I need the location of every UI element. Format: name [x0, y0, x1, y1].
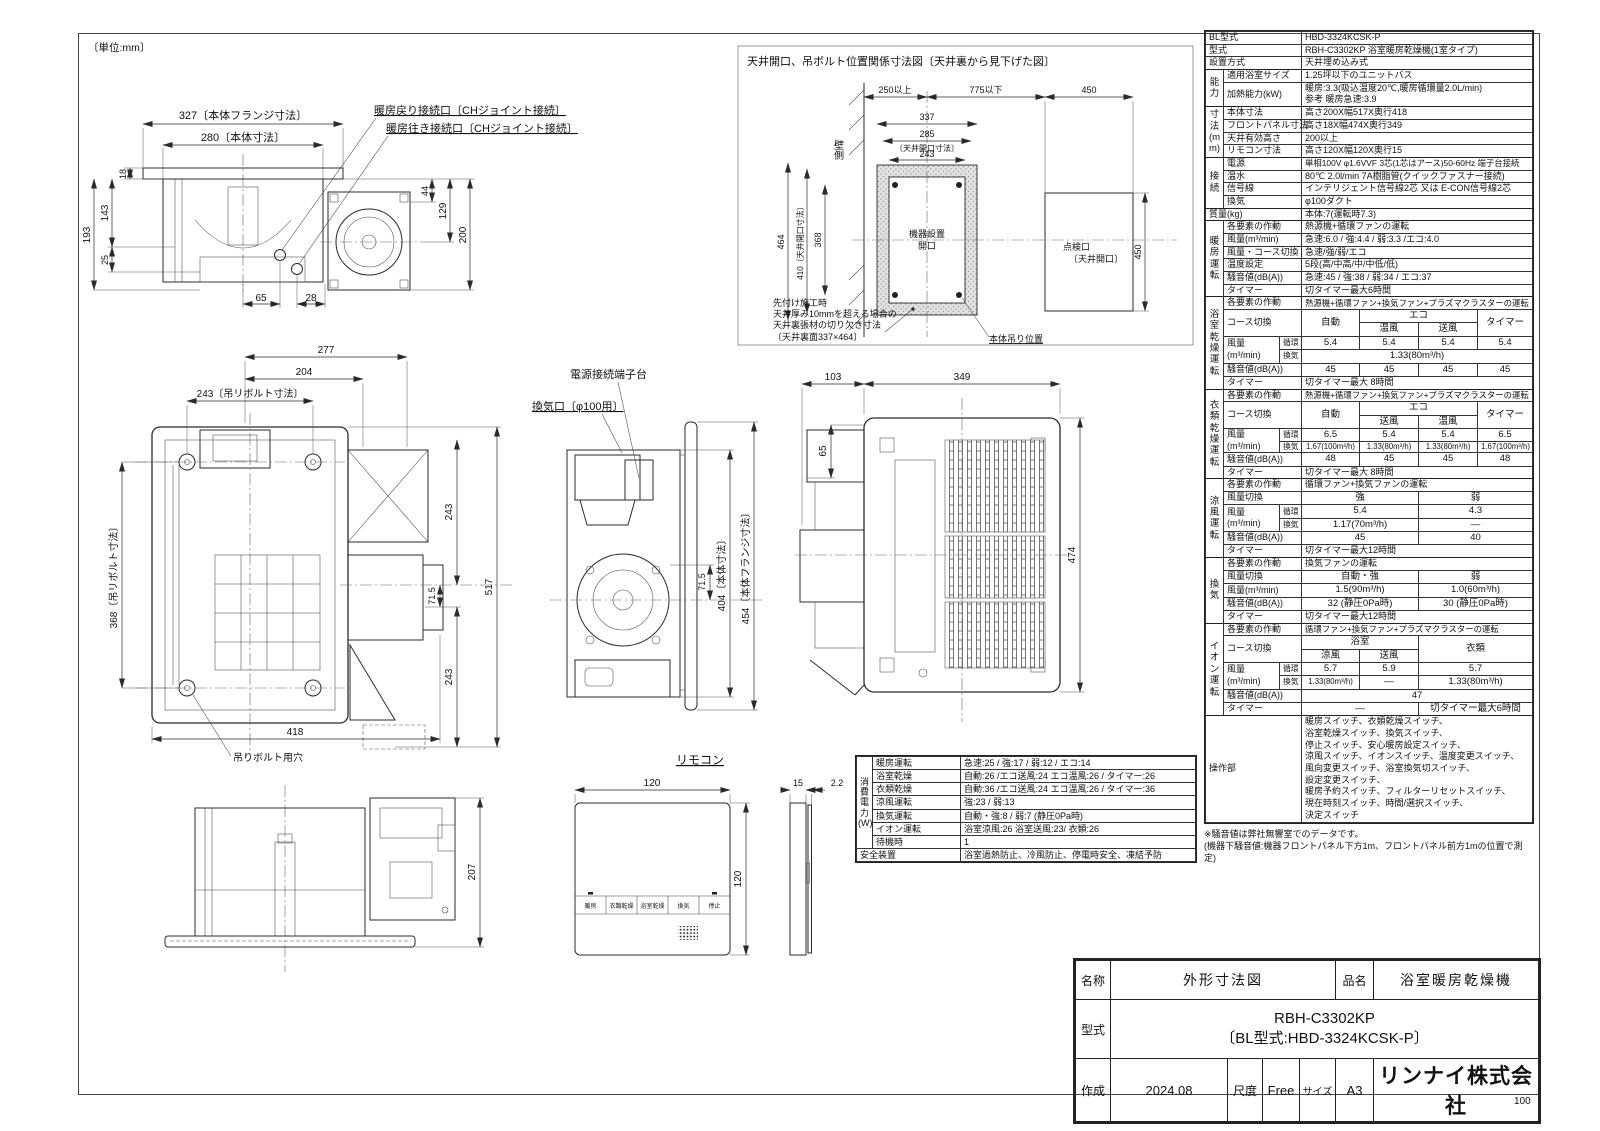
spec-label: タイマー	[1224, 466, 1302, 479]
install-opening-label2: 開口	[918, 241, 936, 251]
spec-label: 各要素の作動	[1224, 297, 1302, 310]
spec-value: 40	[1419, 532, 1533, 545]
spec-value: RBH-C3302KP 浴室暖房乾燥機(1室タイプ)	[1302, 44, 1533, 57]
remote-button-vent: 換気	[677, 902, 689, 910]
spec-value: 5.9	[1360, 662, 1419, 675]
spec-col-header: 弱	[1419, 570, 1533, 583]
dim-label: 71.5	[427, 587, 437, 605]
inspection-port-label2: 〔天井開口〕	[1069, 253, 1123, 264]
spec-value: 200以上	[1302, 132, 1533, 145]
power-value: 1	[961, 835, 1196, 848]
side-view-2-dimensions: 207	[415, 798, 484, 947]
noise-note: ※騒音値は弊社無響室でのデータです。 (機器下騒音値:機器フロントパネル下方1m…	[1204, 828, 1534, 864]
spec-value: 熱源機+循環ファンの運転	[1302, 221, 1533, 234]
spec-value: 1.67(100m³/h)	[1302, 442, 1360, 453]
spec-value: 5.4	[1360, 428, 1419, 441]
remote-button-stop: 停止	[708, 902, 720, 910]
spec-value: 45	[1302, 532, 1419, 545]
panel-view: 103 349 65 474	[795, 370, 1220, 732]
safety-value: 浴室過熱防止、冷風防止、停電時安全、凍結予防	[961, 848, 1196, 861]
spec-value: 熱源機+循環ファン+換気ファン+プラズマクラスターの運転	[1302, 297, 1533, 310]
spec-value: 45	[1302, 363, 1360, 376]
spec-value: 45	[1360, 453, 1419, 466]
spec-value: 高さ200X幅517X奥行418	[1302, 107, 1533, 120]
dim-label: 65	[818, 445, 829, 457]
date-label: 作成	[1076, 1059, 1111, 1122]
spec-col-header: 強	[1302, 492, 1419, 505]
dim-label: 349	[954, 372, 971, 383]
creation-date: 2024.08	[1111, 1059, 1228, 1122]
panel-view-geometry	[795, 398, 1067, 722]
drawing-sheet: 〔単位:mm〕 100 327〔本	[0, 0, 1600, 1131]
spec-sublabel: 循環	[1280, 662, 1302, 675]
power-group: 消費電力(W)	[857, 757, 873, 849]
spec-value: インテリジェント信号線2芯 又は E-CON信号線2芯	[1302, 183, 1533, 196]
dim-label: 18	[118, 169, 128, 179]
spec-value: 1.33(80m³/h)	[1419, 676, 1533, 689]
dim-label: 120	[733, 870, 744, 887]
spec-col-header: 自動・強	[1302, 570, 1419, 583]
spec-col-header: 浴室	[1302, 636, 1419, 649]
spec-value: 切タイマー最大 8時間	[1302, 376, 1533, 389]
remote-button-bath-dry: 浴室乾燥	[640, 902, 664, 910]
spec-label: 風量(m³/min)	[1224, 428, 1280, 452]
spec-label: コース切換	[1224, 310, 1302, 337]
spec-value: 5.7	[1419, 662, 1533, 675]
spec-label: 温度設定	[1224, 259, 1302, 272]
bolt-hole-label: 吊りボルト用穴	[233, 751, 303, 764]
power-table: 消費電力(W) 暖房運転急速:25 / 強:17 / 弱:12 / エコ:14 …	[855, 755, 1197, 863]
dim-label: 285	[919, 129, 934, 139]
spec-label: 風量(m³/min)	[1224, 505, 1280, 532]
spec-value: —	[1419, 518, 1533, 531]
spec-col-header: 送風	[1360, 415, 1419, 428]
dim-label: 368〔吊リボルト寸法〕	[107, 522, 120, 629]
spec-label: 各要素の作動	[1224, 558, 1302, 571]
size-label: サイズ	[1300, 1059, 1336, 1122]
dim-label: 193	[82, 226, 93, 243]
spec-value: 高さ18X幅474X奥行349	[1302, 119, 1533, 132]
spec-label: 騒音値(dB(A))	[1224, 272, 1302, 285]
remote-geometry	[575, 803, 812, 955]
spec-value: 5.4	[1302, 336, 1360, 349]
spec-label: 設置方式	[1206, 57, 1302, 70]
remote-dimensions: 120 120 15 2.2	[575, 778, 843, 955]
side-view-2-geometry	[165, 785, 455, 972]
dim-label: 204	[296, 367, 313, 378]
hanging-position-label: 本体吊り位置	[989, 333, 1043, 344]
spec-value: 4.3	[1419, 505, 1533, 518]
spec-value: 高さ120X幅120X奥行15	[1302, 145, 1533, 158]
dim-label: 44	[420, 186, 430, 196]
spec-label: 質量(kg)	[1206, 208, 1302, 221]
spec-sublabel: 換気	[1280, 442, 1302, 453]
spec-label: タイマー	[1224, 610, 1302, 623]
dim-label: 129	[438, 202, 449, 219]
spec-col-header: 衣類	[1419, 636, 1533, 663]
ceiling-diagram: 天井開口、吊ボルト位置関係寸法図〔天井裏から見下げた図〕 壁側 機器設置 開口 …	[737, 45, 1195, 347]
spec-label: フロントパネル寸法	[1224, 119, 1302, 132]
spec-sublabel: 換気	[1280, 676, 1302, 689]
pre-install-note: 〔天井裏面337×464〕	[773, 331, 862, 342]
spec-value: —	[1360, 676, 1419, 689]
spec-value: 45	[1478, 363, 1533, 376]
front-view-geometry	[143, 154, 425, 292]
spec-value: 循環ファン+換気ファンの運転	[1302, 479, 1533, 492]
power-value: 浴室涼風:26 浴室送風:23/ 衣類:26	[961, 822, 1196, 835]
spec-label: BL型式	[1206, 32, 1302, 45]
power-label: 衣類乾燥	[873, 783, 961, 796]
spec-value: 1.33(80m³/h)	[1419, 442, 1478, 453]
spec-value: 急速:45 / 強:38 / 弱:34 / エコ:37	[1302, 272, 1533, 285]
spec-value: 6.5	[1478, 428, 1533, 441]
dim-label: 280〔本体寸法〕	[201, 130, 285, 144]
drawing-name: 外形寸法図	[1111, 961, 1336, 1000]
spec-value: 5.4	[1419, 336, 1478, 349]
spec-sublabel: 換気	[1280, 350, 1302, 363]
spec-group: 衣類乾燥運転	[1206, 389, 1224, 479]
dim-label: 404〔本体寸法〕	[715, 535, 728, 612]
spec-value-line: 暖房:3.3(吸込温度20℃,暖房循環量2.0L/min)	[1305, 83, 1529, 95]
spec-value: 1.33(80m³/h)	[1302, 350, 1533, 363]
spec-value: 80℃ 2.0l/min 7A樹脂管(クイックファスナー接続)	[1302, 170, 1533, 183]
spec-value: 1.33(80m³/h)	[1360, 442, 1419, 453]
spec-group: 暖房運転	[1206, 221, 1224, 297]
spec-value: 48	[1302, 453, 1360, 466]
spec-connection-table: 接続 電源単相100V φ1.6VVF 3芯(1芯はアース)50-60Hz 端子…	[1205, 157, 1533, 209]
spec-label: 各要素の作動	[1224, 479, 1302, 492]
spec-label: 換気	[1224, 195, 1302, 208]
dim-label: 143	[100, 204, 111, 221]
side-view-callouts: 電源接続端子台 換気口〔φ100用〕	[532, 367, 647, 478]
power-label: 換気運転	[873, 809, 961, 822]
dim-label: 277	[318, 345, 335, 356]
dim-label: 474	[1067, 546, 1078, 563]
spec-value: 暖房:3.3(吸込温度20℃,暖房循環量2.0L/min)参考 暖房急速:3.9	[1302, 82, 1533, 106]
dim-label: 120	[644, 778, 661, 789]
product-name: 浴室暖房乾燥機	[1374, 961, 1539, 1000]
spec-value: 切タイマー最大12時間	[1302, 545, 1533, 558]
power-label: 待機時	[873, 835, 961, 848]
company-name: リンナイ株式会社	[1374, 1059, 1539, 1122]
spec-mass-table: 質量(kg)本体:7(運転時7.3)	[1205, 208, 1533, 222]
spec-sublabel: 循環	[1280, 336, 1302, 349]
spec-value: 切タイマー最大6時間	[1302, 284, 1533, 297]
spec-label: 本体寸法	[1224, 107, 1302, 120]
dim-label: 450	[1081, 85, 1096, 95]
spec-label: 風量・コース切換	[1224, 246, 1302, 259]
spec-label: タイマー	[1224, 376, 1302, 389]
spec-label: タイマー	[1224, 545, 1302, 558]
ch-return-label: 暖房戻り接続口〔CHジョイント接続〕	[374, 103, 566, 117]
spec-value: 換気ファンの運転	[1302, 558, 1533, 571]
spec-value: 6.5	[1302, 428, 1360, 441]
spec-label: コース切換	[1224, 402, 1302, 429]
safety-label: 安全装置	[857, 848, 961, 861]
spec-label: 適用浴室サイズ	[1224, 70, 1302, 83]
spec-label: コース切換	[1224, 636, 1302, 663]
spec-label: 風量(m³/min)	[1224, 584, 1302, 597]
front-view-callouts: 暖房戻り接続口〔CHジョイント接続〕 暖房往き接続口〔CHジョイント接続〕	[282, 103, 578, 264]
dim-label: 327〔本体フランジ寸法〕	[179, 108, 307, 122]
spec-value: 暖房スイッチ、衣類乾燥スイッチ、浴室乾燥スイッチ、換気スイッチ、 停止スイッチ、…	[1302, 716, 1533, 822]
spec-col-header: エコ	[1360, 402, 1478, 415]
dim-label: 337	[919, 112, 934, 122]
power-value: 自動:26 /エコ送風:24 エコ温風:26 / タイマー:26	[961, 770, 1196, 783]
dim-label: 2.2	[831, 778, 844, 788]
model-label: 型式	[1076, 1000, 1111, 1059]
dim-label: 464	[776, 234, 786, 249]
spec-label: 風量切換	[1224, 570, 1302, 583]
vent-port-label: 換気口〔φ100用〕	[532, 399, 624, 413]
spec-col-header: 温風	[1360, 323, 1419, 336]
spec-value: 45	[1360, 363, 1419, 376]
spec-col-header: 送風	[1419, 323, 1478, 336]
spec-value: 47	[1302, 689, 1533, 702]
spec-label: 天井有効高さ	[1224, 132, 1302, 145]
remote-view: リモコン 暖房 衣類乾燥 浴室乾燥 換気 停止 120 120	[550, 748, 860, 1003]
spec-label: 騒音値(dB(A))	[1224, 532, 1302, 545]
pre-install-note: 天井裏張材の切り欠き寸法	[773, 319, 881, 330]
power-label: 浴室乾燥	[873, 770, 961, 783]
ch-supply-label: 暖房往き接続口〔CHジョイント接続〕	[386, 121, 578, 135]
spec-label: 信号線	[1224, 183, 1302, 196]
spec-value: 熱源機+循環ファン+換気ファン+プラズマクラスターの運転	[1302, 389, 1533, 402]
dim-label: 243	[444, 668, 455, 685]
spec-label: 各要素の作動	[1224, 221, 1302, 234]
spec-sublabel: 換気	[1280, 518, 1302, 531]
dim-label: 243	[919, 149, 934, 159]
spec-value: 5.4	[1360, 336, 1419, 349]
spec-col-header: 自動	[1302, 402, 1360, 429]
pre-install-note: 先付け施工時	[773, 297, 827, 308]
power-value: 強:23 / 弱:13	[961, 796, 1196, 809]
dim-label: 410〔天井開口寸法〕	[795, 202, 805, 279]
power-value: 自動:36 /エコ送風:24 エコ温風:26 / タイマー:36	[961, 783, 1196, 796]
spec-value: —	[1302, 702, 1419, 715]
spec-col-header: 温風	[1419, 415, 1478, 428]
dim-label: 25	[100, 255, 110, 265]
spec-group: イオン運転	[1206, 623, 1224, 716]
spec-value: 単相100V φ1.6VVF 3芯(1芯はアース)50-60Hz 端子台接続	[1302, 157, 1533, 170]
dim-label: 207	[467, 863, 478, 880]
spec-value: 1.33(80m³/h)	[1302, 676, 1360, 689]
ceiling-diagram-title: 天井開口、吊ボルト位置関係寸法図〔天井裏から見下げた図〕	[747, 54, 1055, 68]
spec-value: 1.25坪以下のユニットバス	[1302, 70, 1533, 83]
spec-value: φ100ダクト	[1302, 195, 1533, 208]
spec-value-line: 参考 暖房急速:3.9	[1305, 94, 1529, 106]
install-opening-label: 機器設置	[909, 228, 945, 239]
spec-label: 操作部	[1206, 716, 1302, 822]
dim-label: 368	[813, 232, 823, 247]
spec-value: 48	[1478, 453, 1533, 466]
spec-col-header: タイマー	[1478, 402, 1533, 429]
spec-value: 1.17(70m³/h)	[1302, 518, 1419, 531]
spec-col-header: 自動	[1302, 310, 1360, 337]
spec-label: 加熱能力(kW)	[1224, 82, 1302, 106]
side-view-dimensions: 71.5 404〔本体寸法〕 454〔本体フランジ寸法〕	[670, 422, 758, 710]
spec-controls-table: 操作部 暖房スイッチ、衣類乾燥スイッチ、浴室乾燥スイッチ、換気スイッチ、 停止ス…	[1205, 715, 1533, 822]
spec-group: 涼風運転	[1206, 479, 1224, 558]
title-block: 名称 外形寸法図 品名 浴室暖房乾燥機 型式 RBH-C3302KP 〔BL型式…	[1073, 958, 1541, 1124]
spec-value: 急速/強/弱/エコ	[1302, 246, 1533, 259]
dim-label: 15	[793, 778, 803, 788]
spec-label: タイマー	[1224, 284, 1302, 297]
spec-group: 換気	[1206, 558, 1224, 623]
spec-label: 騒音値(dB(A))	[1224, 689, 1302, 702]
item-label: 品名	[1336, 961, 1374, 1000]
speaker-grille	[678, 926, 698, 940]
spec-label: 温水	[1224, 170, 1302, 183]
spec-label: 電源	[1224, 157, 1302, 170]
wall-side-label: 壁側	[832, 139, 844, 160]
front-view-dimensions: 327〔本体フランジ寸法〕 280〔本体寸法〕 18 193 143 25 44…	[82, 108, 475, 308]
spec-group: 能力	[1206, 70, 1224, 107]
power-label: 暖房運転	[873, 757, 961, 770]
dim-label: 200	[458, 226, 469, 243]
spec-value: 5.4	[1302, 505, 1419, 518]
spec-value: 30 (静圧0Pa時)	[1419, 597, 1533, 610]
spec-value: 32 (静圧0Pa時)	[1302, 597, 1419, 610]
power-label: イオン運転	[873, 822, 961, 835]
dim-label: 28	[305, 293, 317, 304]
spec-value: 切タイマー最大12時間	[1302, 610, 1533, 623]
spec-ion-table: イオン運転 各要素の作動 循環ファン+換気ファン+プラズマクラスターの運転 コー…	[1205, 623, 1533, 717]
dim-label: 250以上	[878, 85, 911, 95]
spec-group: 浴室乾燥運転	[1206, 297, 1224, 389]
plan-view-geometry	[135, 413, 515, 755]
spec-value: 急速:6.0 / 強:4.4 / 弱:3.3 /エコ:4.0	[1302, 234, 1533, 247]
side-view-2: 207	[140, 770, 500, 982]
spec-value: 本体:7(運転時7.3)	[1302, 208, 1533, 221]
spec-value: HBD-3324KCSK-P	[1302, 32, 1533, 45]
unit-note: 〔単位:mm〕	[88, 40, 150, 55]
dim-label: 418	[287, 727, 304, 738]
pre-install-note: 天井厚み10mmを超える場合の	[773, 308, 897, 319]
spec-col-header: 涼風	[1302, 649, 1360, 662]
spec-bath-dry-table: 浴室乾燥運転 各要素の作動 熱源機+循環ファン+換気ファン+プラズマクラスターの…	[1205, 296, 1533, 389]
spec-dimension-table: 寸法(mm) 本体寸法高さ200X幅517X奥行418 フロントパネル寸法高さ1…	[1205, 106, 1533, 158]
spec-label: 型式	[1206, 44, 1302, 57]
spec-col-header: エコ	[1360, 310, 1478, 323]
spec-clothes-dry-table: 衣類乾燥運転 各要素の作動 熱源機+循環ファン+換気ファン+プラズマクラスターの…	[1205, 389, 1533, 480]
spec-capacity-table: 能力 適用浴室サイズ 1.25坪以下のユニットバス 加熱能力(kW) 暖房:3.…	[1205, 69, 1533, 107]
spec-value: 1.67(100m³/h)	[1478, 442, 1533, 453]
spec-label: タイマー	[1224, 702, 1302, 715]
spec-value: 5.4	[1419, 428, 1478, 441]
spec-heating-table: 暖房運転 各要素の作動熱源機+循環ファンの運転 風量(m³/min)急速:6.0…	[1205, 220, 1533, 297]
spec-label: 騒音値(dB(A))	[1224, 597, 1302, 610]
spec-value: 1.5(90m³/h)	[1302, 584, 1419, 597]
spec-label: 風量切換	[1224, 492, 1302, 505]
dim-label: 454〔本体フランジ寸法〕	[739, 508, 752, 625]
spec-sublabel: 循環	[1280, 505, 1302, 518]
spec-value: 5.7	[1302, 662, 1360, 675]
dim-label: 517	[484, 578, 495, 595]
spec-label: 各要素の作動	[1224, 623, 1302, 636]
spec-label: 風量(m³/min)	[1224, 234, 1302, 247]
power-value: 急速:25 / 強:17 / 弱:12 / エコ:14	[961, 757, 1196, 770]
size-value: A3	[1336, 1059, 1374, 1122]
spec-group: 寸法(mm)	[1206, 107, 1224, 158]
model-number: RBH-C3302KP 〔BL型式:HBD-3324KCSK-P〕	[1111, 1000, 1539, 1059]
dim-label: 243〔吊リボルト寸法〕	[197, 387, 304, 400]
dim-label: 103	[825, 372, 842, 383]
dim-label: 775以下	[969, 85, 1002, 95]
spec-label: 各要素の作動	[1224, 389, 1302, 402]
spec-group: 接続	[1206, 157, 1224, 208]
spec-value: 天井埋め込み式	[1302, 57, 1533, 70]
spec-panel: BL型式HBD-3324KCSK-P 型式RBH-C3302KP 浴室暖房乾燥機…	[1204, 30, 1534, 864]
remote-button-heating: 暖房	[584, 902, 596, 910]
spec-label: 騒音値(dB(A))	[1224, 363, 1302, 376]
plan-view: 277 204 243〔吊リボルト寸法〕 368〔吊リボルト寸法〕 243 71…	[95, 335, 540, 767]
spec-value: 5.4	[1478, 336, 1533, 349]
dim-label: 65	[255, 293, 267, 304]
inspection-port-label: 点検口	[1063, 241, 1090, 252]
dim-label: 71.5	[697, 573, 707, 591]
spec-value: 1.0(60m³/h)	[1419, 584, 1533, 597]
spec-cool-breeze-table: 涼風運転 各要素の作動 循環ファン+換気ファンの運転 風量切換 強 弱 風量(m…	[1205, 478, 1533, 558]
side-view: 71.5 404〔本体寸法〕 454〔本体フランジ寸法〕 電源接続端子台 換気口…	[530, 360, 805, 752]
front-view: 327〔本体フランジ寸法〕 280〔本体寸法〕 18 193 143 25 44…	[80, 92, 655, 327]
ceiling-geometry: 壁側 機器設置 開口 点検口 〔天井開口〕	[832, 83, 1178, 337]
spec-value: 切タイマー最大6時間	[1419, 702, 1533, 715]
spec-label: 風量(m³/min)	[1224, 336, 1280, 363]
scale-value: Free	[1263, 1059, 1300, 1122]
remote-buttons: 暖房 衣類乾燥 浴室乾燥 換気 停止	[584, 902, 720, 910]
power-value: 自動・強:8 / 弱:7 (静圧0Pa時)	[961, 809, 1196, 822]
remote-title: リモコン	[676, 753, 724, 767]
name-label: 名称	[1076, 961, 1111, 1000]
spec-col-header: 弱	[1419, 492, 1533, 505]
dim-label: 450	[1133, 244, 1143, 259]
spec-col-header: タイマー	[1478, 310, 1533, 337]
spec-value: 45	[1419, 453, 1478, 466]
spec-value: 5段(高/中高/中/中低/低)	[1302, 259, 1533, 272]
spec-label: リモコン寸法	[1224, 145, 1302, 158]
spec-col-header: 送風	[1360, 649, 1419, 662]
spec-value: 切タイマー最大 8時間	[1302, 466, 1533, 479]
spec-value: 循環ファン+換気ファン+プラズマクラスターの運転	[1302, 623, 1533, 636]
power-label: 涼風運転	[873, 796, 961, 809]
spec-ventilation-table: 換気 各要素の作動 換気ファンの運転 風量切換 自動・強 弱 風量(m³/min…	[1205, 557, 1533, 623]
spec-value: 45	[1419, 363, 1478, 376]
terminal-label: 電源接続端子台	[570, 367, 647, 381]
spec-sublabel: 循環	[1280, 428, 1302, 441]
plan-view-dimensions: 277 204 243〔吊リボルト寸法〕 368〔吊リボルト寸法〕 243 71…	[107, 345, 501, 747]
spec-label: 風量(m³/min)	[1224, 662, 1280, 689]
spec-basic-table: BL型式HBD-3324KCSK-P 型式RBH-C3302KP 浴室暖房乾燥機…	[1205, 31, 1533, 70]
spec-label: 騒音値(dB(A))	[1224, 453, 1302, 466]
remote-button-clothes-dry: 衣類乾燥	[609, 902, 633, 910]
dim-label: 243	[444, 503, 455, 520]
scale-label: 尺度	[1228, 1059, 1263, 1122]
